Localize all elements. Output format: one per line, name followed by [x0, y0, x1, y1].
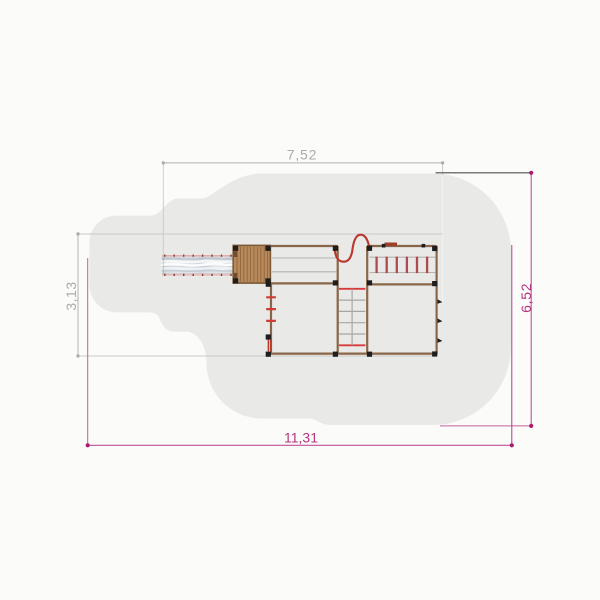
svg-text:11,31: 11,31 — [284, 430, 318, 446]
svg-text:7,52: 7,52 — [287, 147, 317, 163]
svg-text:6,52: 6,52 — [518, 283, 534, 313]
svg-text:3,13: 3,13 — [63, 281, 79, 310]
